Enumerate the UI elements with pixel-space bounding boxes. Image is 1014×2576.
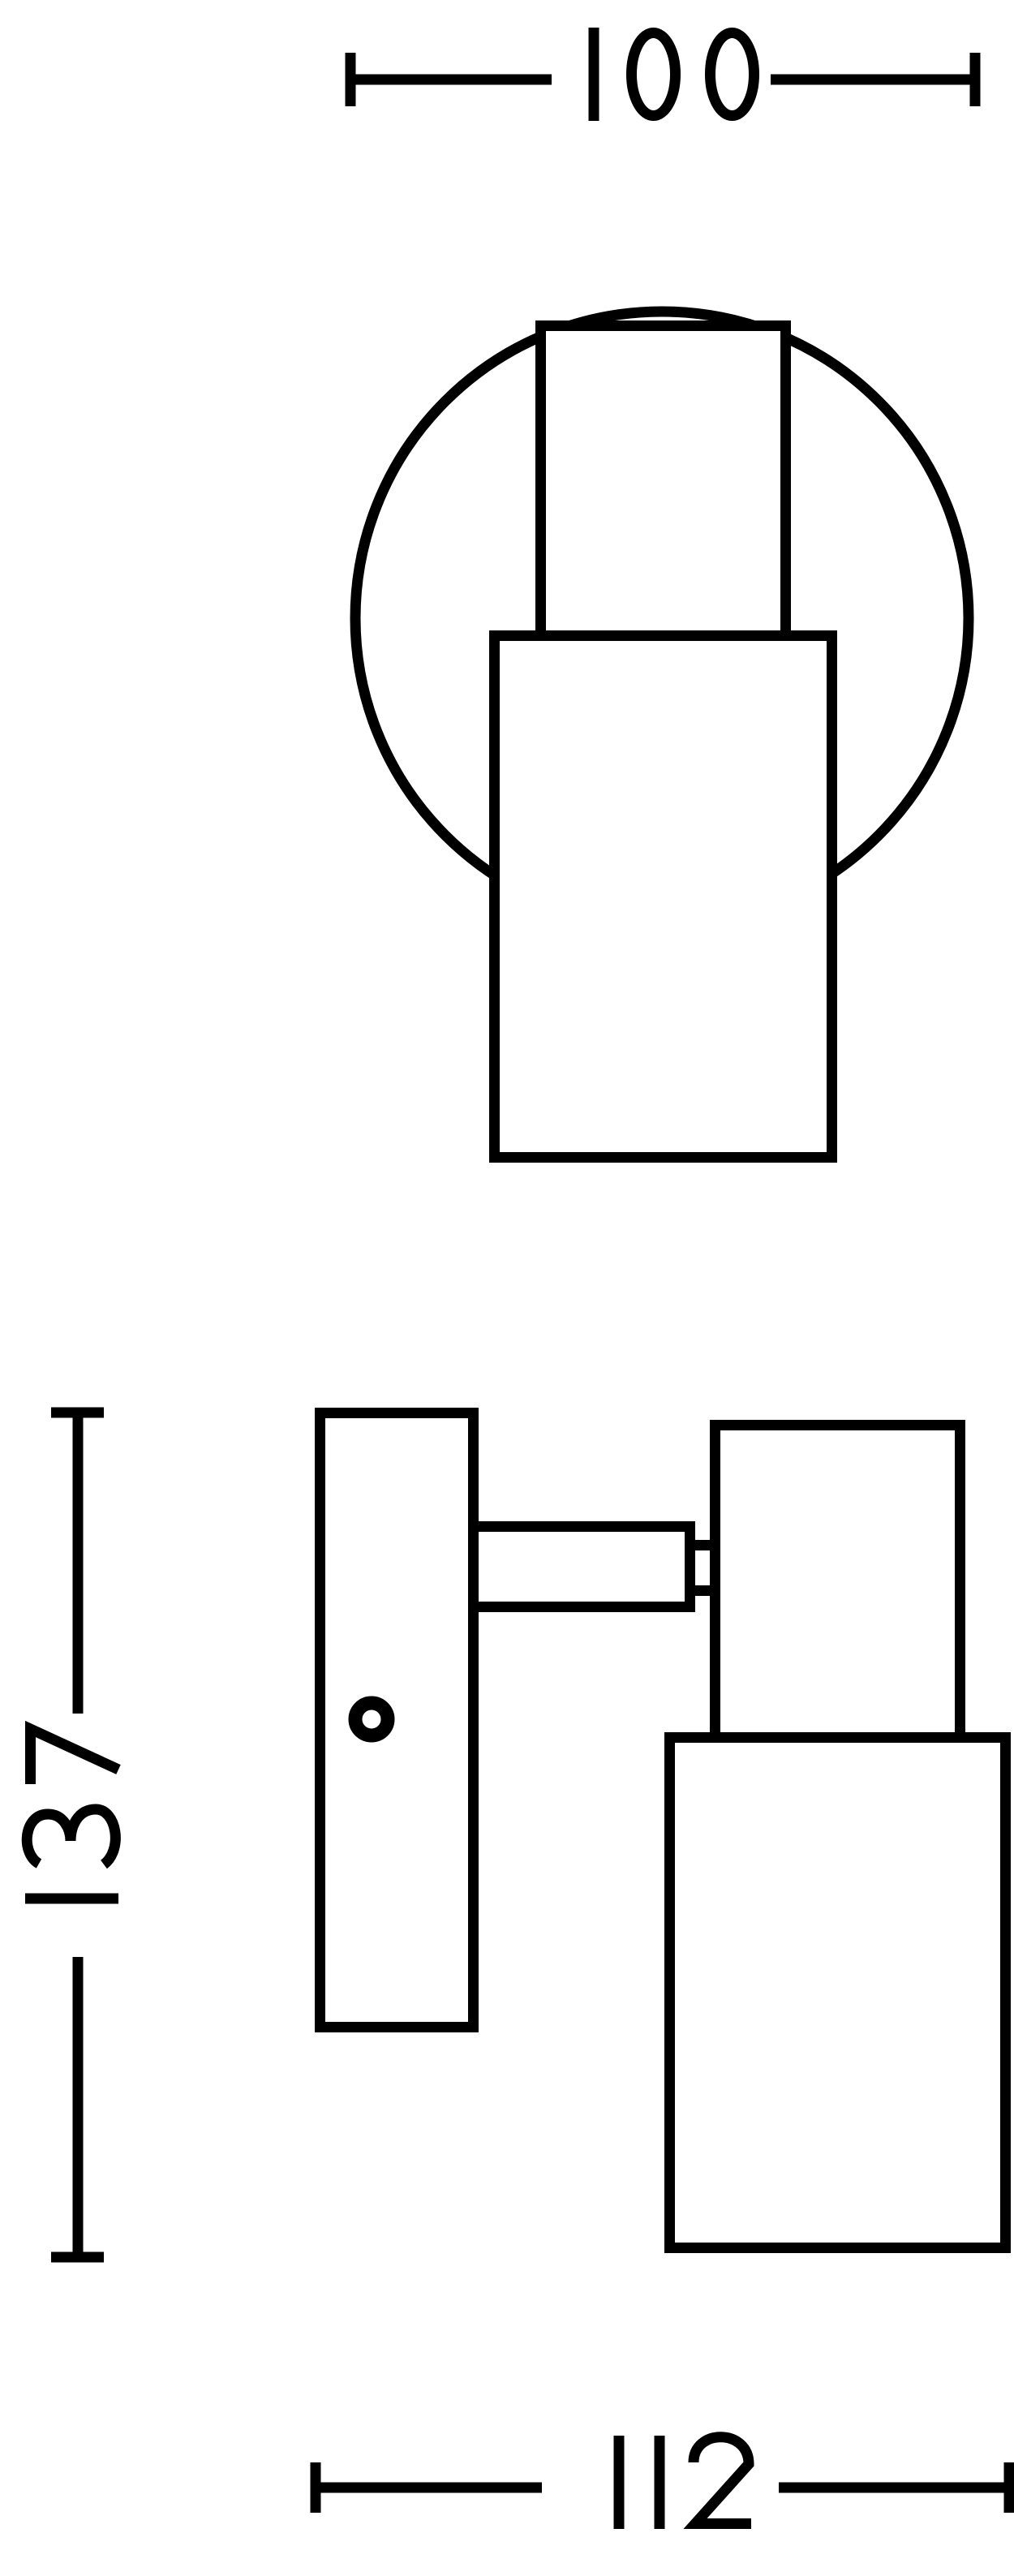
- side-view: [320, 1413, 1006, 2248]
- screw-hole: [355, 1703, 388, 1735]
- digit-0: [711, 33, 754, 116]
- dimension-bottom-width-label: [619, 2436, 751, 2529]
- digit-7: [31, 1729, 119, 1784]
- technical-drawing: [0, 0, 1014, 2576]
- top-lamp-head: [541, 326, 786, 647]
- top-lamp-body: [495, 636, 832, 1158]
- mounting-arm: [477, 1527, 690, 1607]
- top-view: [355, 312, 969, 1158]
- side-lamp-head: [715, 1426, 960, 1742]
- dimension-bottom-width: [316, 2436, 1009, 2529]
- digit-0: [632, 33, 676, 116]
- side-lamp-body: [670, 1738, 1006, 2248]
- dimension-side-height-label: [25, 1729, 118, 1899]
- wall-plate: [320, 1413, 474, 2028]
- dimension-side-height: [25, 1413, 118, 2257]
- dimension-top-width: [350, 28, 975, 121]
- digit-2: [694, 2437, 751, 2524]
- dimension-top-width-label: [594, 28, 754, 121]
- digit-3: [27, 1809, 115, 1864]
